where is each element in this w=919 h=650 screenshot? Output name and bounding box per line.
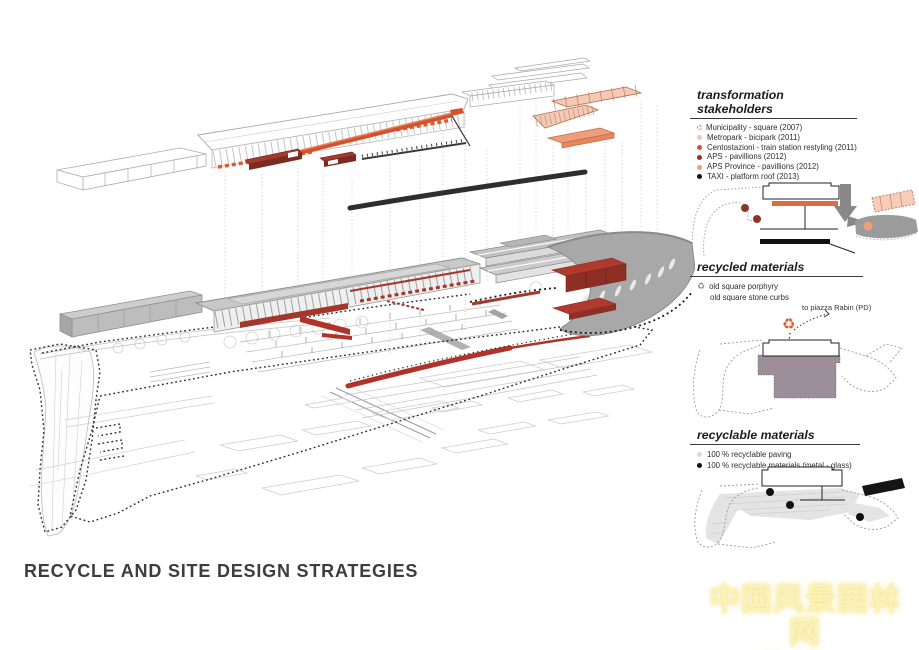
legend-item-metropark: Metropark - bicipark (2011) <box>690 133 919 143</box>
watermark: 中国风景园林网 chla.com.cn <box>696 584 914 650</box>
mini-station-building-2 <box>763 340 839 356</box>
aps-dot-icon <box>697 155 702 160</box>
stakeholders-mini-plan <box>690 176 919 260</box>
mini-bicipark-rect <box>872 190 915 212</box>
recycled-section: recycled materials ♻ old square porphyry… <box>690 260 919 303</box>
dashed-circle-icon <box>697 125 702 130</box>
watermark-cn-text: 中国风景园林网 <box>696 584 914 649</box>
ground-plan-level <box>30 294 652 536</box>
upper-left-building-outline <box>57 148 206 190</box>
mini-black-bar <box>862 478 905 496</box>
page-title: RECYCLE AND SITE DESIGN STRATEGIES <box>24 561 418 582</box>
mini-station-building <box>763 183 839 199</box>
recyclable-mini-plan <box>690 464 919 556</box>
recycled-mini-plan: to piazza Rabin (PD) ♻ <box>690 300 919 426</box>
paving-dot-icon <box>697 452 702 457</box>
station-level <box>60 230 695 337</box>
ground-red-canopy <box>300 301 590 386</box>
centostazioni-dot-icon <box>697 145 702 150</box>
mini-orange-strip <box>772 201 838 206</box>
main-station-building <box>196 258 480 332</box>
left-gray-building <box>60 291 202 337</box>
metropark-dot-icon <box>697 135 702 140</box>
taxi-platform-roof-bar <box>350 172 585 208</box>
mini-plan-site-outline <box>692 187 762 256</box>
legend-column: transformation stakeholders Municipality… <box>690 0 919 650</box>
recycle-orange-icon: ♻ <box>782 316 795 333</box>
mini-recyclable-dot-3 <box>856 513 864 521</box>
legend-item-municipality: Municipality - square (2007) <box>690 123 919 133</box>
platform-canopy-bars <box>350 140 585 208</box>
presentation-board: transformation stakeholders Municipality… <box>0 0 919 650</box>
mini-station-building-3 <box>762 467 842 486</box>
legend-item-centostazioni: Centostazioni - train station restyling … <box>690 143 919 153</box>
exploded-axonometric-diagram <box>0 0 695 560</box>
recycle-icon: ♻ <box>697 281 705 292</box>
legend-item-recyclable-paving: 100 % recyclable paving <box>690 449 919 460</box>
interventions-level <box>57 58 641 208</box>
piazza-rabin-annotation: to piazza Rabin (PD) <box>802 303 872 312</box>
mini-old-square-area <box>758 355 840 398</box>
recyclable-title: recyclable materials <box>690 428 860 445</box>
stakeholders-title: transformation stakeholders <box>690 88 857 119</box>
mini-recyclable-dot-1 <box>766 488 774 496</box>
mini-recyclable-dot-2 <box>786 501 794 509</box>
legend-item-porphyry: ♻ old square porphyry <box>690 281 919 292</box>
mini-province-dot <box>864 222 873 231</box>
recycled-title: recycled materials <box>690 260 863 277</box>
stakeholders-section: transformation stakeholders Municipality… <box>690 88 919 182</box>
province-pavilion-slab <box>548 128 614 148</box>
mini-aps-dot-2 <box>753 215 761 223</box>
aps-province-dot-icon <box>697 165 702 170</box>
mini-aps-dot <box>741 204 749 212</box>
legend-item-aps: APS - pavillions (2012) <box>690 152 919 162</box>
legend-item-aps-province: APS Province - pavillions (2012) <box>690 162 919 172</box>
mini-taxi-bar <box>760 239 830 244</box>
